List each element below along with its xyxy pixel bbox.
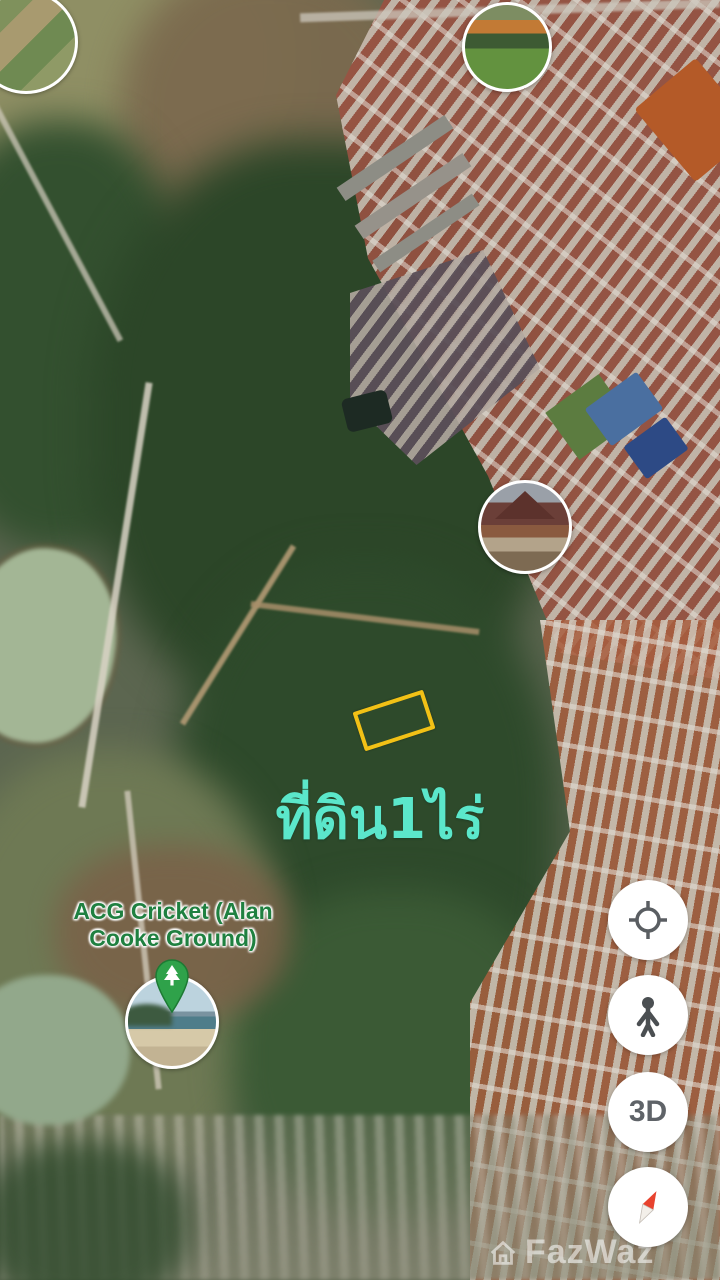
- poi-label-acg-cricket: ACG Cricket (Alan Cooke Ground): [38, 898, 308, 952]
- 3d-button-label: 3D: [629, 1095, 667, 1129]
- pegman-icon: [626, 993, 670, 1037]
- photo-marker-temple[interactable]: [478, 480, 572, 574]
- land-plot-label: ที่ดิน1ไร่: [230, 786, 530, 853]
- poi-label-line1: ACG Cricket (Alan: [38, 898, 308, 925]
- park-tree-pin-icon[interactable]: [152, 958, 192, 1014]
- 3d-view-button[interactable]: 3D: [608, 1072, 688, 1152]
- compass-needle-icon: [625, 1184, 671, 1230]
- trees-bottom-left: [0, 1140, 190, 1280]
- my-location-button[interactable]: [608, 880, 688, 960]
- compass-button[interactable]: [608, 1167, 688, 1247]
- poi-label-line2: Cooke Ground): [38, 925, 308, 952]
- photo-marker-field-building[interactable]: [462, 2, 552, 92]
- street-view-button[interactable]: [608, 975, 688, 1055]
- house-logo-icon: [487, 1237, 519, 1269]
- my-location-target-icon: [626, 898, 670, 942]
- satellite-map-canvas[interactable]: ที่ดิน1ไร่ ACG Cricket (Alan Cooke Groun…: [0, 0, 720, 1280]
